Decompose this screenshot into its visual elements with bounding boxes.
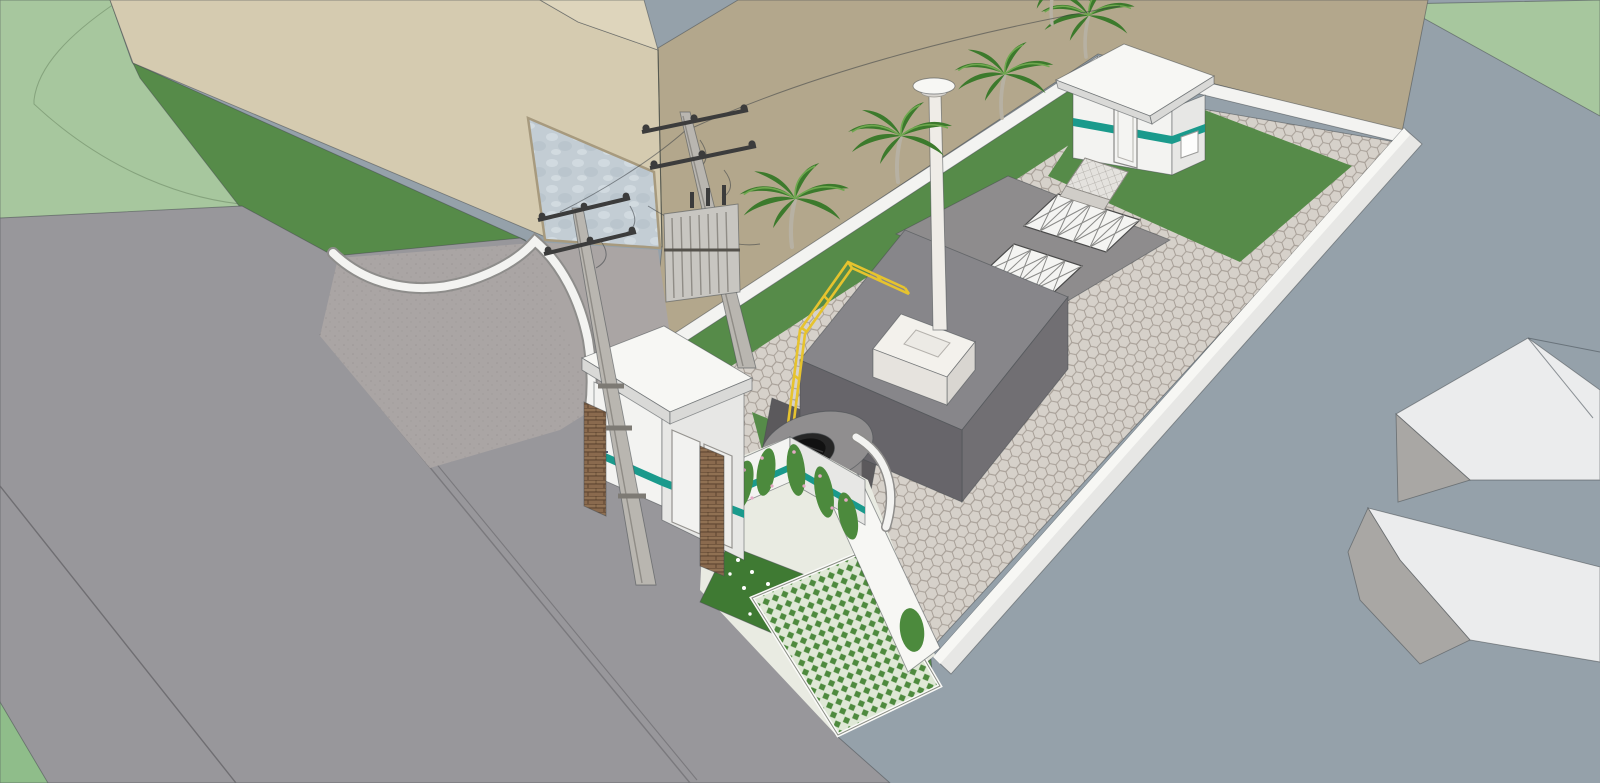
chimney-cap bbox=[913, 78, 955, 94]
brick-pillar-left bbox=[584, 402, 606, 516]
sketchup-3d-viewport[interactable] bbox=[0, 0, 1600, 783]
brick-pillar-right bbox=[700, 446, 724, 576]
site-model-render bbox=[0, 0, 1600, 783]
gatehouse-door-1 bbox=[672, 430, 700, 534]
transformer-body bbox=[664, 204, 740, 302]
